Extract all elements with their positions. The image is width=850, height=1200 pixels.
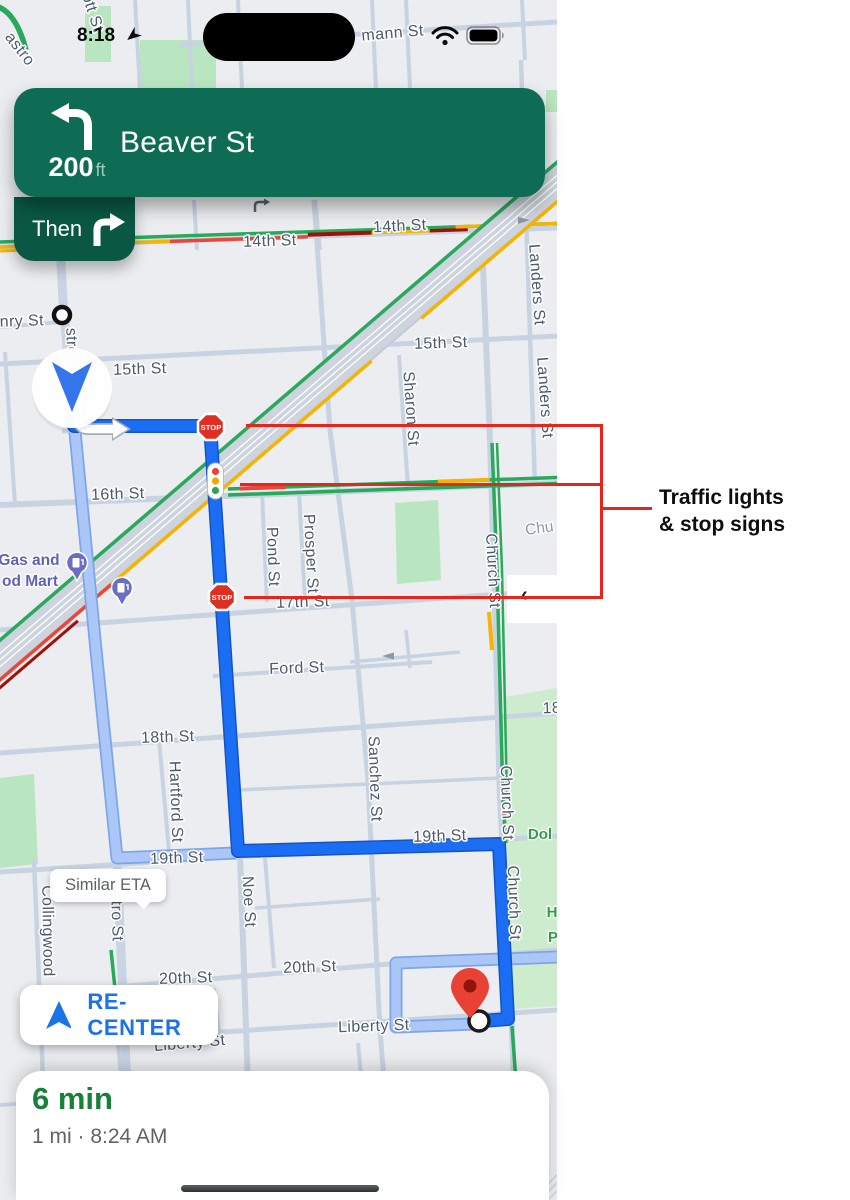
street-label: 15th St [113,360,167,379]
transit-station-icon [54,307,70,323]
street-label: Sanchez St [365,736,385,823]
street-label: 18 [542,700,557,718]
annotation-line-stop2 [244,596,603,599]
annotation-caption-line2: & stop signs [659,511,785,538]
street-label: Church St [497,765,517,840]
similar-eta-chip[interactable]: Similar ETA [50,869,166,902]
stop-sign-icon: STOP [198,414,224,440]
stop-sign-label: STOP [212,593,233,602]
street-label: 20th St [283,958,337,977]
maneuver-distance: 200ft [22,152,132,183]
turn-left-icon [46,100,106,152]
notch [203,13,355,61]
recenter-label: RE-CENTER [87,989,218,1041]
street-label: 14th St [243,232,297,251]
street-label: 19th St [413,827,467,846]
annotation-line-trafficlight [240,483,603,486]
street-label: 18th St [141,728,195,747]
traffic-light-icon [208,463,224,499]
trip-duration: 6 min [32,1081,113,1117]
then-label: Then [32,197,82,261]
home-indicator[interactable] [181,1185,379,1192]
annotation-panel [557,0,850,1200]
poi-label-park: P [548,929,557,946]
street-label: Liberty St [338,1017,410,1036]
turn-right-icon [84,212,130,250]
stop-sign-label: STOP [201,423,222,432]
street-label: nry St [0,312,44,331]
then-maneuver-chip[interactable]: Then [14,197,135,261]
poi-label-gas: od Mart [2,573,58,590]
stop-sign-icon: STOP [209,584,235,610]
street-label: 16th St [91,485,145,504]
annotation-bracket [600,424,603,599]
street-label: Pond St [263,527,282,587]
annotation-caption: Traffic lights & stop signs [659,484,785,538]
wifi-icon [431,26,459,46]
maneuver-street-name: Beaver St [120,88,254,197]
street-label: Ford St [269,659,325,678]
screenshot-stage: STOP STOP 14th St 14th St 15th St 15th S… [0,0,850,1200]
street-label: Church St [504,865,524,940]
annotation-line-stop1 [246,424,603,427]
location-puck-icon [32,348,112,432]
similar-eta-label: Similar ETA [65,876,151,895]
distance-unit: ft [96,160,106,180]
street-label: 14th St [373,217,427,237]
poi-label-gas: Gas and [0,552,60,569]
location-arrow-icon [127,27,143,43]
street-label: 19th St [150,849,204,868]
trip-bottom-sheet[interactable]: 6 min 1 mi · 8:24 AM [16,1071,549,1200]
edge-chevron-box[interactable]: ‹ [507,575,557,623]
battery-icon [466,26,508,46]
recenter-button[interactable]: RE-CENTER [20,985,218,1045]
status-time: 8:18 [64,25,128,47]
street-label: Noe St [239,876,259,928]
recenter-arrow-icon [46,1001,71,1029]
poi-label-park: H [547,904,557,921]
street-label: 15th St [414,334,468,353]
street-label: Hartford St [166,761,186,843]
annotation-caption-line1: Traffic lights [659,484,785,511]
navigation-banner[interactable]: 200ft Beaver St [14,88,545,197]
trip-details: 1 mi · 8:24 AM [32,1125,167,1149]
annotation-pointer [600,507,652,510]
poi-label-park: Dol [528,826,552,843]
distance-value: 200 [48,152,93,182]
